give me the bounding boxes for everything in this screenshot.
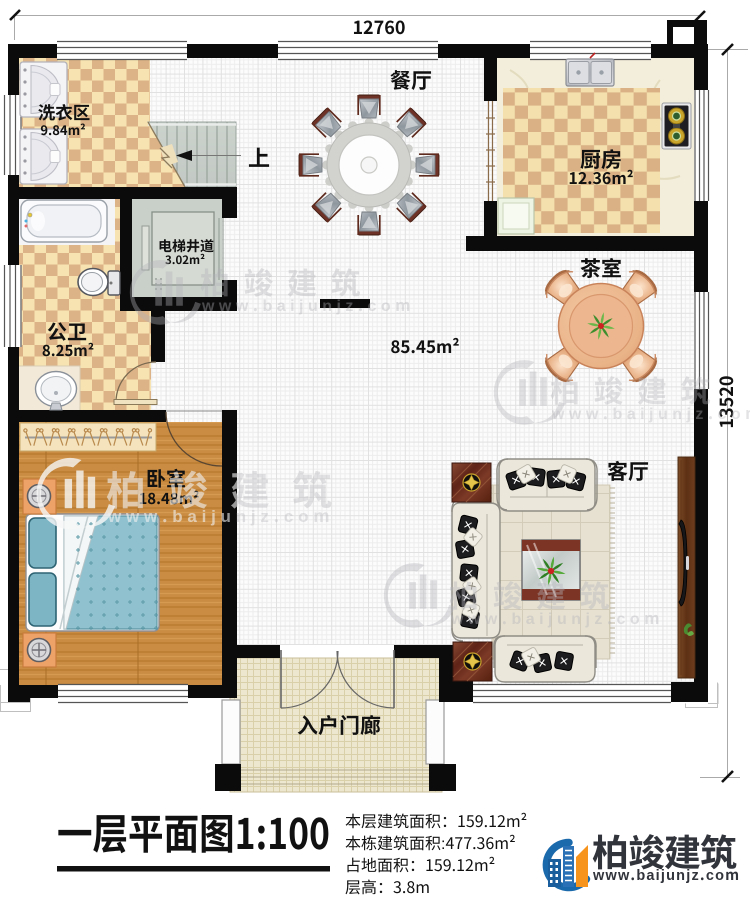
- svg-text:85.45m²: 85.45m²: [390, 333, 459, 358]
- svg-text:www.baijunjz.com: www.baijunjz.com: [592, 864, 740, 885]
- svg-text:本栋建筑面积:477.36m²: 本栋建筑面积:477.36m²: [345, 830, 516, 854]
- svg-text:www.baijunjz.com: www.baijunjz.com: [450, 605, 664, 629]
- svg-text:一层平面图1:100: 一层平面图1:100: [57, 801, 330, 862]
- svg-text:12.36m²: 12.36m²: [568, 165, 633, 189]
- svg-text:茶室: 茶室: [580, 253, 622, 283]
- svg-text:9.84m²: 9.84m²: [40, 120, 85, 139]
- svg-text:www.baijunjz.com: www.baijunjz.com: [201, 292, 415, 316]
- svg-text:客厅: 客厅: [607, 456, 649, 486]
- svg-text:上: 上: [248, 141, 270, 173]
- svg-text:本层建筑面积：159.12m²: 本层建筑面积：159.12m²: [345, 808, 527, 832]
- svg-text:餐厅: 餐厅: [390, 65, 432, 95]
- svg-text:层高：3.8m: 层高：3.8m: [345, 874, 430, 898]
- svg-text:入户门廊: 入户门廊: [297, 710, 381, 740]
- svg-text:12760: 12760: [352, 14, 405, 40]
- svg-text:占地面积：159.12m²: 占地面积：159.12m²: [345, 852, 495, 876]
- svg-text:www.baijunjz.com: www.baijunjz.com: [551, 400, 750, 424]
- svg-text:8.25m²: 8.25m²: [42, 340, 94, 361]
